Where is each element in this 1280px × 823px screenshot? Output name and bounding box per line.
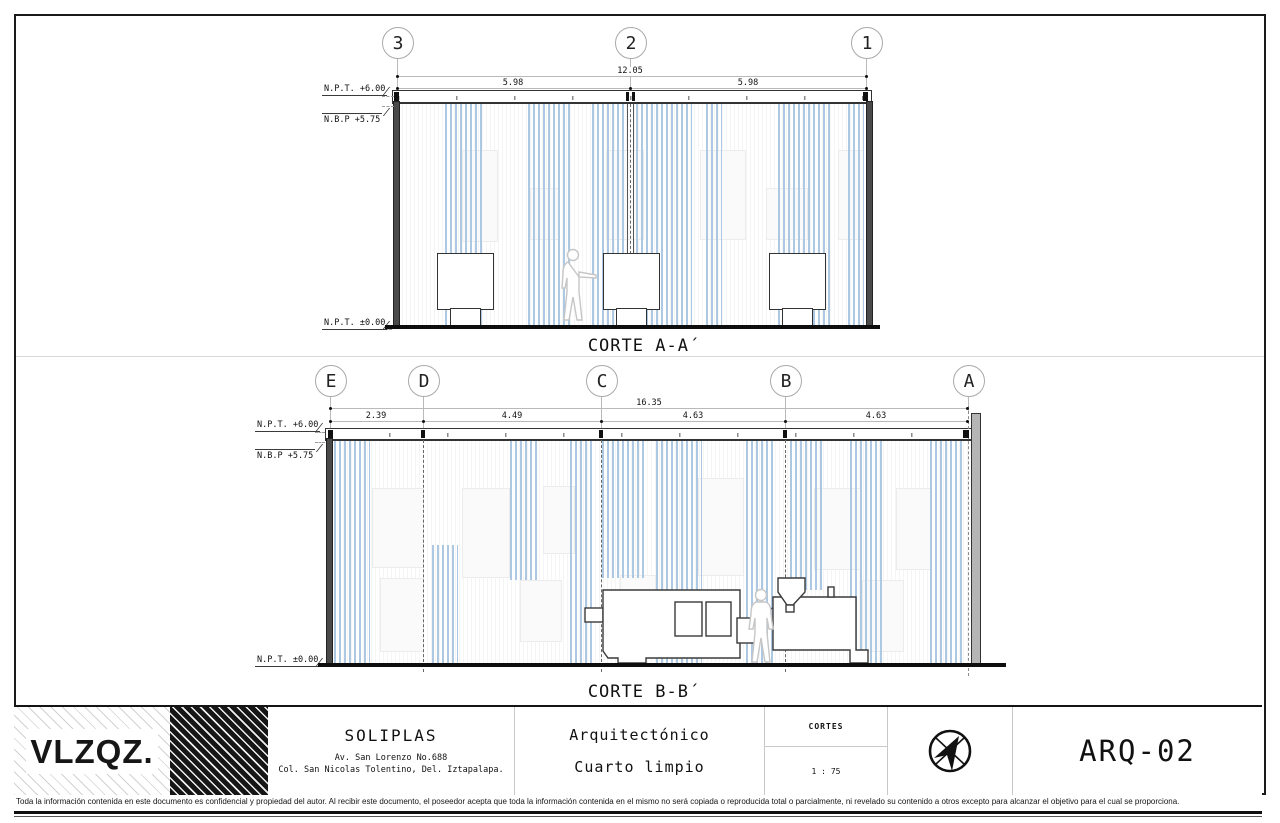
scale-value: 1 : 75 bbox=[765, 747, 887, 795]
grid-leader-line bbox=[601, 395, 602, 428]
grid-centerline bbox=[630, 104, 631, 254]
column-cap bbox=[632, 92, 635, 101]
dimension-label: 2.39 bbox=[364, 412, 388, 421]
wall-section-left bbox=[393, 101, 400, 327]
grid-bubble-label: 3 bbox=[393, 33, 404, 54]
person-figure bbox=[556, 248, 602, 326]
dimension-label: 12.05 bbox=[615, 67, 645, 76]
dimension-tick bbox=[966, 420, 969, 423]
floor-line bbox=[318, 663, 1006, 667]
sheet-number: ARQ-02 bbox=[1079, 734, 1196, 768]
section-title: CORTE B-B´ bbox=[588, 682, 700, 702]
floor-line bbox=[385, 325, 880, 329]
dimension-tick bbox=[865, 87, 868, 90]
grid-bubble-label: E bbox=[326, 371, 337, 392]
section-divider bbox=[16, 356, 1264, 357]
grid-leader-line bbox=[866, 57, 867, 90]
machine-box bbox=[769, 253, 826, 310]
dimension-tick bbox=[784, 420, 787, 423]
wall-panel bbox=[896, 488, 932, 570]
footer-rule bbox=[14, 811, 1262, 814]
dimension-tick bbox=[865, 75, 868, 78]
title-block: VLZQZ. SOLIPLAS Av. San Lorenzo No.688 C… bbox=[14, 705, 1262, 795]
logo-cell: VLZQZ. bbox=[14, 707, 170, 795]
level-text: N.P.T. +6.00 bbox=[324, 84, 385, 94]
grid-bubble-label: 2 bbox=[626, 33, 637, 54]
grid-bubble-label: C bbox=[597, 371, 608, 392]
disclaimer: Toda la información contenida en este do… bbox=[16, 797, 1264, 808]
scale-cell: CORTES 1 : 75 bbox=[765, 707, 888, 795]
curtain-stripes bbox=[510, 440, 538, 580]
grid-bubble: 2 bbox=[615, 27, 647, 59]
column-cap bbox=[783, 430, 787, 438]
north-arrow-icon bbox=[926, 727, 974, 775]
column-cap bbox=[963, 430, 969, 438]
level-label: N.B.P +5.75 bbox=[255, 449, 315, 461]
dimension-tick bbox=[600, 420, 603, 423]
client-name: SOLIPLAS bbox=[344, 726, 437, 745]
dimension-label: 5.98 bbox=[736, 79, 760, 88]
person-figure bbox=[744, 588, 778, 667]
machine-box bbox=[603, 253, 660, 310]
dimension-line bbox=[330, 408, 968, 409]
dimension-tick bbox=[629, 87, 632, 90]
client-cell: SOLIPLAS Av. San Lorenzo No.688 Col. San… bbox=[268, 707, 515, 795]
grid-bubble: A bbox=[953, 365, 985, 397]
level-text: N.B.P +5.75 bbox=[324, 115, 380, 125]
footer-rule-thin bbox=[14, 816, 1262, 817]
grid-bubble-label: B bbox=[781, 371, 792, 392]
grid-bubble: D bbox=[408, 365, 440, 397]
address-line: Av. San Lorenzo No.688 bbox=[278, 752, 503, 764]
grid-bubble-label: A bbox=[964, 371, 975, 392]
wall-panel bbox=[520, 580, 562, 642]
level-text: N.B.P +5.75 bbox=[257, 451, 313, 461]
level-leader bbox=[382, 106, 394, 107]
level-leader bbox=[315, 442, 325, 443]
grid-leader-line bbox=[785, 395, 786, 428]
level-text: N.P.T. ±0.00 bbox=[324, 318, 385, 328]
level-leader bbox=[315, 432, 325, 433]
grid-leader-line bbox=[397, 57, 398, 90]
grid-leader-line bbox=[423, 395, 424, 428]
grid-bubble-label: 1 bbox=[862, 33, 873, 54]
dimension-tick bbox=[966, 407, 969, 410]
sheet-type-label: CORTES bbox=[765, 707, 887, 747]
dimension-tick bbox=[329, 420, 332, 423]
sheet-number-cell: ARQ-02 bbox=[1013, 707, 1262, 795]
grid-bubble-label: D bbox=[419, 371, 430, 392]
drawing-sheet: 3 2 1 12.05 5.98 5.98 N.P.T. +6.00 N.B.P… bbox=[0, 0, 1280, 823]
grid-bubble: C bbox=[586, 365, 618, 397]
curtain-stripes bbox=[334, 440, 370, 663]
dimension-line bbox=[397, 76, 866, 77]
dimension-tick bbox=[329, 407, 332, 410]
stamp-hatch-block bbox=[170, 707, 268, 795]
project-cell: Arquitectónico Cuarto limpio bbox=[515, 707, 765, 795]
dimension-label: 5.98 bbox=[501, 79, 525, 88]
column-cap bbox=[421, 430, 425, 438]
level-label: N.B.P +5.75 bbox=[322, 113, 382, 125]
wall-section-right bbox=[866, 101, 873, 327]
roof-purlin-ticks bbox=[398, 96, 864, 100]
grid-leader-line bbox=[330, 395, 331, 428]
grid-bubble: 1 bbox=[851, 27, 883, 59]
column-cap bbox=[599, 430, 603, 438]
client-address: Av. San Lorenzo No.688 Col. San Nicolas … bbox=[278, 752, 503, 776]
dimension-tick bbox=[396, 87, 399, 90]
project-name: Cuarto limpio bbox=[574, 758, 704, 776]
level-leader bbox=[382, 96, 394, 97]
level-text: N.P.T. +6.00 bbox=[257, 420, 318, 430]
wall-panel bbox=[698, 478, 744, 576]
dimension-tick bbox=[396, 75, 399, 78]
column-cap bbox=[394, 92, 399, 101]
column-cap bbox=[328, 430, 333, 438]
dimension-label: 4.63 bbox=[681, 412, 705, 421]
grid-line bbox=[423, 440, 424, 672]
dimension-line bbox=[330, 421, 968, 422]
grid-bubble: B bbox=[770, 365, 802, 397]
wall-panel bbox=[372, 488, 424, 568]
wall-section-right bbox=[971, 413, 981, 667]
wall-panel bbox=[462, 488, 510, 578]
curtain-stripes bbox=[432, 545, 458, 663]
center-column-edge bbox=[627, 104, 628, 254]
wall-section-left bbox=[326, 438, 333, 667]
dimension-label: 16.35 bbox=[634, 399, 664, 408]
grid-line bbox=[968, 406, 969, 676]
roof-purlin-ticks bbox=[331, 433, 965, 437]
project-type: Arquitectónico bbox=[569, 726, 709, 744]
curtain-stripes bbox=[930, 440, 964, 663]
address-line: Col. San Nicolas Tolentino, Del. Iztapal… bbox=[278, 764, 503, 776]
machine-box bbox=[437, 253, 494, 310]
curtain-stripes bbox=[848, 104, 864, 325]
dimension-tick bbox=[422, 420, 425, 423]
column-cap bbox=[863, 92, 868, 101]
curtain-stripes bbox=[706, 104, 722, 325]
dimension-label: 4.49 bbox=[500, 412, 524, 421]
level-text: N.P.T. ±0.00 bbox=[257, 655, 318, 665]
section-title: CORTE A-A´ bbox=[588, 336, 700, 356]
curtain-stripes bbox=[602, 440, 646, 578]
center-column-edge bbox=[633, 104, 634, 254]
grid-bubble: 3 bbox=[382, 27, 414, 59]
grid-bubble: E bbox=[315, 365, 347, 397]
logo: VLZQZ. bbox=[26, 729, 157, 774]
compass-cell bbox=[888, 707, 1013, 795]
column-cap bbox=[626, 92, 629, 101]
wall-panel bbox=[380, 578, 424, 652]
dimension-label: 4.63 bbox=[864, 412, 888, 421]
